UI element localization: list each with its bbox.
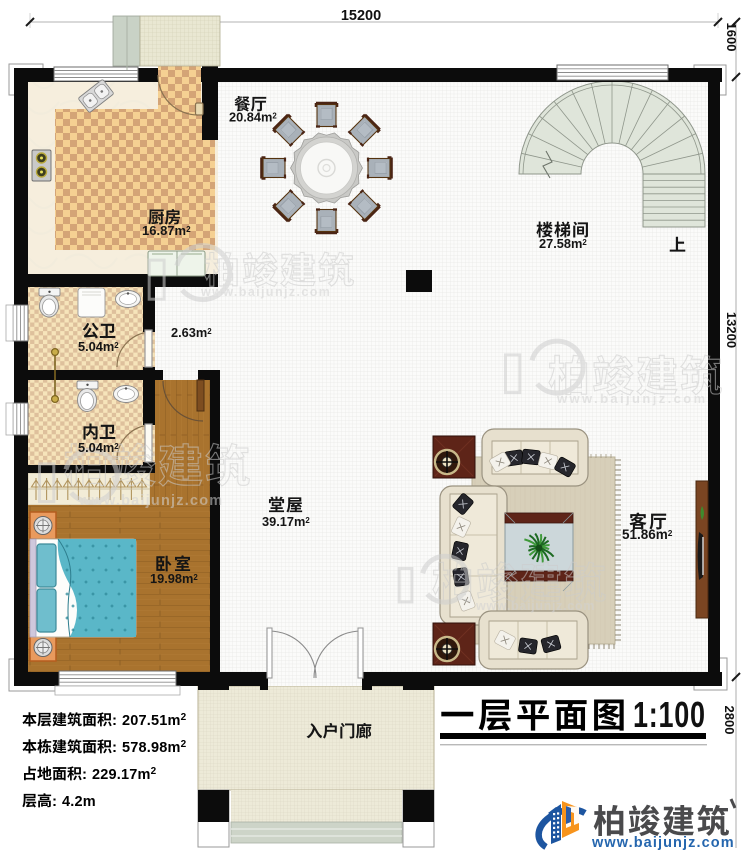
svg-text:19.98m2: 19.98m2 (150, 571, 198, 586)
svg-text:39.17m2: 39.17m2 (262, 514, 310, 529)
svg-text:13200: 13200 (724, 312, 739, 348)
svg-text:www.baijunjz.com: www.baijunjz.com (556, 391, 708, 406)
svg-text:15200: 15200 (341, 8, 381, 24)
svg-text:5.04m2: 5.04m2 (78, 440, 119, 455)
svg-text:www.baijunjz.com: www.baijunjz.com (591, 835, 735, 851)
svg-text:51.86m2: 51.86m2 (622, 527, 673, 542)
svg-text:207.51m2: 207.51m2 (122, 712, 187, 729)
svg-text:16.87m2: 16.87m2 (142, 223, 191, 238)
svg-text:229.17m2: 229.17m2 (92, 766, 157, 783)
svg-text:www.baijunjz.com: www.baijunjz.com (78, 493, 223, 509)
svg-text:4.2m: 4.2m (62, 794, 96, 810)
svg-text:1600: 1600 (724, 23, 739, 52)
svg-text:20.84m2: 20.84m2 (229, 110, 277, 125)
svg-text:2800: 2800 (722, 706, 737, 735)
svg-text::: : (82, 766, 87, 783)
svg-text:www.baijunjz.com: www.baijunjz.com (475, 599, 595, 613)
svg-text:2.63m2: 2.63m2 (171, 325, 212, 340)
svg-text:www.baijunjz.com: www.baijunjz.com (200, 285, 331, 299)
svg-text:578.98m2: 578.98m2 (122, 739, 187, 756)
svg-text::: : (112, 739, 117, 756)
svg-text::: : (112, 712, 117, 729)
svg-text:1:100: 1:100 (633, 694, 706, 735)
svg-text:27.58m2: 27.58m2 (539, 236, 587, 251)
svg-text:5.04m2: 5.04m2 (78, 339, 119, 354)
svg-text::: : (52, 793, 57, 810)
